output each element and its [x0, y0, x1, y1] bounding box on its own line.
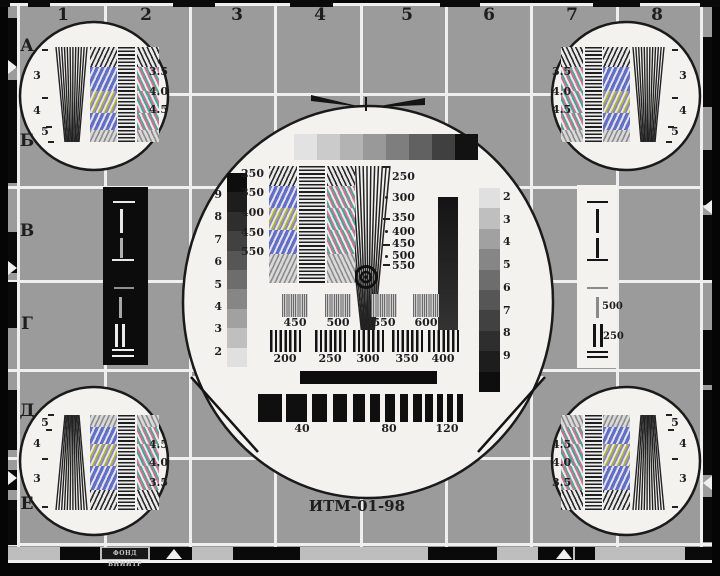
- column-number: 2: [136, 6, 156, 26]
- wedge-tick: [48, 141, 54, 143]
- corner-grating-label: 4.5: [146, 104, 168, 117]
- lf-burst-bar: [258, 394, 282, 422]
- grating-band: [603, 130, 630, 142]
- grating-band: [90, 130, 117, 142]
- lf-burst-bar: [333, 394, 347, 422]
- grayscale-right-label: 2: [503, 191, 521, 204]
- pulse-element: [596, 209, 599, 233]
- grating-band: [327, 186, 355, 208]
- grayscale-right-label: 8: [503, 327, 521, 340]
- column-number: 8: [647, 6, 667, 26]
- corner-grating-label: 3.5: [552, 66, 574, 79]
- center-wedge-label: 350: [392, 212, 422, 225]
- center-grating-label: 550: [234, 246, 264, 259]
- fine-burst-label: 450: [280, 317, 310, 330]
- issuer-mark-box: ФОНД ВНИИТР: [102, 548, 148, 559]
- wedge-tick: [672, 458, 678, 460]
- grating-band: [90, 490, 117, 510]
- fine-burst-block: [282, 294, 308, 317]
- corner-grating-column: [118, 47, 135, 142]
- lf-burst-label: 120: [432, 423, 462, 436]
- grayscale-left-label: 7: [204, 234, 222, 247]
- pulse-element: [119, 297, 122, 318]
- coarse-burst-block: [392, 330, 423, 352]
- left-border-notch: [8, 261, 17, 275]
- grating-band: [90, 91, 117, 113]
- grayscale-right-step: [479, 331, 500, 351]
- lf-burst-bar: [312, 394, 327, 422]
- right-border-notch: [703, 200, 712, 214]
- column-number: 4: [310, 6, 330, 26]
- gray-staircase-step: [363, 134, 386, 160]
- center-wedge-label: 300: [392, 192, 422, 205]
- pulse-element: [587, 201, 608, 203]
- corner-wedge-label: 3: [30, 473, 44, 486]
- grating-band: [269, 208, 297, 230]
- left-border-notch: [8, 60, 17, 74]
- grating-band: [603, 444, 630, 466]
- fine-burst-label: 500: [323, 317, 353, 330]
- coarse-burst-label: 200: [270, 353, 300, 366]
- corner-grating-label: 4.5: [552, 104, 574, 117]
- center-grating-column: [299, 166, 325, 283]
- grating-band: [561, 130, 583, 142]
- bottom-strip-mark: [233, 547, 300, 560]
- grayscale-left-step: [227, 270, 247, 289]
- grayscale-left-step: [227, 289, 247, 308]
- left-border-notch: [8, 471, 17, 485]
- grating-band: [603, 415, 630, 427]
- grating-band: [603, 67, 630, 91]
- top-border-mark: [700, 0, 720, 7]
- coarse-burst-block: [315, 330, 346, 352]
- pulse-element: [587, 356, 608, 358]
- grating-band: [327, 166, 355, 186]
- pulse-element: [120, 238, 123, 258]
- fine-burst-label: 600: [411, 317, 441, 330]
- grayscale-left-label: 6: [204, 256, 222, 269]
- corner-wedge-label: 3: [676, 70, 690, 83]
- wedge-tick: [42, 506, 48, 508]
- pulse-element: [112, 355, 134, 357]
- gray-staircase-step: [432, 134, 455, 160]
- column-number: 6: [479, 6, 499, 26]
- bottom-strip-notch: [556, 549, 572, 559]
- grating-band: [603, 113, 630, 130]
- coarse-burst-label: 350: [392, 353, 422, 366]
- grating-band: [137, 490, 159, 510]
- coarse-burst-label: 250: [315, 353, 345, 366]
- grayscale-right-step: [479, 351, 500, 371]
- right-border-mark: [703, 497, 712, 542]
- grayscale-right-label: 9: [503, 350, 521, 363]
- fine-burst-block: [371, 294, 397, 317]
- black-reference-bar: [438, 197, 458, 332]
- pulse-label: 250: [603, 331, 627, 343]
- grayscale-left-label: 2: [204, 346, 222, 359]
- lf-burst-bar: [286, 394, 307, 422]
- corner-grating-label: 4.0: [146, 457, 168, 470]
- pulse-element: [596, 297, 599, 318]
- pulse-element: [600, 324, 603, 347]
- lf-burst-label: 80: [374, 423, 404, 436]
- lf-burst-bar: [370, 394, 380, 422]
- grating-band: [603, 427, 630, 444]
- corner-wedge-label: 4: [676, 105, 690, 118]
- lf-burst-label: 40: [287, 423, 317, 436]
- column-number: 5: [397, 6, 417, 26]
- wedge-tick-dot: [385, 196, 388, 199]
- right-border-mark: [703, 330, 712, 385]
- grayscale-right-label: 7: [503, 305, 521, 318]
- right-border-mark: [703, 390, 712, 475]
- grayscale-left-step: [227, 348, 247, 367]
- center-grating-label: 350: [234, 187, 264, 200]
- grating-band: [90, 67, 117, 91]
- grating-band: [90, 444, 117, 466]
- corner-wedge-label: 4: [30, 438, 44, 451]
- bottom-strip-mark: [60, 547, 100, 560]
- wedge-tick: [383, 264, 390, 266]
- grating-band: [90, 466, 117, 490]
- left-border-mark: [8, 282, 17, 328]
- column-number: 3: [227, 6, 247, 26]
- left-border-mark: [8, 140, 17, 183]
- grayscale-left-label: 4: [204, 301, 222, 314]
- gray-staircase-step: [340, 134, 363, 160]
- wedge-tick: [383, 166, 390, 168]
- wedge-tick: [383, 218, 390, 220]
- corner-grating-column: [118, 415, 135, 510]
- corner-wedge-label: 3: [30, 70, 44, 83]
- corner-grating-column: [90, 415, 117, 510]
- wedge-tick: [48, 414, 54, 416]
- center-grating-label: 400: [234, 207, 264, 220]
- wedge-tick-dot: [385, 255, 388, 258]
- bottom-strip-mark: [685, 547, 712, 560]
- grating-band: [90, 427, 117, 444]
- gray-staircase-step: [294, 134, 317, 160]
- wedge-tick: [672, 506, 678, 508]
- pulse-element: [113, 201, 135, 203]
- grayscale-right-step: [479, 208, 500, 228]
- pulse-element: [120, 209, 123, 233]
- top-border-mark: [0, 0, 10, 7]
- grayscale-right-step: [479, 290, 500, 310]
- wedge-tick: [42, 458, 48, 460]
- grating-band: [90, 113, 117, 130]
- fine-burst-block: [325, 294, 351, 317]
- right-border-notch: [703, 476, 712, 490]
- grayscale-right-label: 5: [503, 259, 521, 272]
- grating-band: [269, 230, 297, 254]
- gray-staircase-step: [317, 134, 340, 160]
- center-grating-column: [327, 166, 355, 283]
- fine-burst-label: 550: [369, 317, 399, 330]
- grayscale-right-step: [479, 310, 500, 330]
- top-border-mark: [28, 0, 50, 7]
- grayscale-right-label: 3: [503, 214, 521, 227]
- grating-band: [137, 47, 159, 67]
- top-border-mark: [290, 0, 333, 7]
- corner-grating-label: 4.0: [552, 86, 574, 99]
- center-wedge-label: 250: [392, 171, 422, 184]
- lf-burst-bar: [425, 394, 433, 422]
- lf-burst-bar: [457, 394, 463, 422]
- pulse-element: [112, 349, 134, 351]
- grating-band: [327, 254, 355, 283]
- lf-burst-bar: [437, 394, 443, 422]
- pulse-element: [114, 287, 134, 289]
- grayscale-right-step: [479, 229, 500, 249]
- corner-grating-label: 4.0: [552, 457, 574, 470]
- grating-band: [269, 166, 297, 186]
- row-letter: Д: [15, 402, 39, 422]
- grating-band: [561, 415, 583, 427]
- grayscale-left-label: 3: [204, 323, 222, 336]
- lf-burst-bar: [413, 394, 422, 422]
- grayscale-left-step: [227, 309, 247, 328]
- corner-grating-label: 4.5: [552, 439, 574, 452]
- column-number: 1: [53, 6, 73, 26]
- wedge-tick: [666, 141, 672, 143]
- pulse-element: [122, 324, 125, 347]
- grating-band: [327, 208, 355, 230]
- grayscale-right-step: [479, 372, 500, 392]
- lf-burst-bar: [353, 394, 365, 422]
- coarse-burst-label: 300: [353, 353, 383, 366]
- pulse-element: [587, 351, 608, 353]
- grating-band: [90, 47, 117, 67]
- corner-grating-column: [603, 415, 630, 510]
- corner-grating-column: [585, 415, 602, 510]
- corner-grating-label: 3.5: [146, 66, 168, 79]
- corner-wedge-label: 5: [38, 126, 52, 139]
- corner-wedge-label: 5: [668, 417, 682, 430]
- corner-wedge-label: 4: [30, 105, 44, 118]
- grayscale-left-label: 9: [204, 189, 222, 202]
- row-letter: Е: [15, 495, 39, 515]
- wedge-tick: [672, 49, 678, 51]
- grayscale-right-step: [479, 188, 500, 208]
- grating-band: [327, 230, 355, 254]
- corner-wedge-label: 5: [668, 126, 682, 139]
- grating-band: [603, 490, 630, 510]
- grating-band: [561, 490, 583, 510]
- grating-band: [561, 47, 583, 67]
- row-letter: В: [15, 222, 39, 242]
- top-border-mark: [173, 0, 215, 7]
- corner-grating-column: [585, 47, 602, 142]
- row-letter: Б: [15, 132, 39, 152]
- wedge-tick: [42, 97, 48, 99]
- coarse-burst-block: [353, 330, 384, 352]
- lf-burst-bar: [400, 394, 408, 422]
- card-title: ИТМ-01-98: [287, 498, 427, 515]
- gray-staircase-step: [386, 134, 409, 160]
- top-border-mark: [440, 0, 480, 7]
- right-border-mark: [703, 150, 712, 205]
- grayscale-right-step: [479, 270, 500, 290]
- fine-burst-block: [413, 294, 439, 317]
- pulse-element: [115, 324, 118, 347]
- row-letter: Г: [15, 315, 39, 335]
- corner-grating-column: [90, 47, 117, 142]
- bottom-strip-notch: [166, 549, 182, 559]
- lf-burst-bar: [385, 394, 395, 422]
- corner-grating-column: [603, 47, 630, 142]
- gray-staircase-step: [409, 134, 432, 160]
- center-grating-label: 250: [234, 168, 264, 181]
- pulse-label: 500: [602, 301, 626, 313]
- coarse-burst-block: [428, 330, 459, 352]
- test-card-itm-01-98: 12345678АБВГДЕ3453.54.04.53453.54.04.534…: [0, 0, 720, 576]
- grayscale-left-step: [227, 328, 247, 347]
- left-border-mark: [8, 390, 17, 450]
- center-grating-label: 450: [234, 227, 264, 240]
- grayscale-right-label: 6: [503, 282, 521, 295]
- grating-band: [137, 415, 159, 427]
- grating-band: [90, 415, 117, 427]
- grating-band: [603, 47, 630, 67]
- gray-staircase-step: [455, 134, 478, 160]
- corner-wedge-label: 4: [676, 438, 690, 451]
- left-border-mark: [8, 500, 17, 545]
- coarse-burst-label: 400: [428, 353, 458, 366]
- pulse-element: [587, 259, 608, 261]
- top-border-mark: [593, 0, 640, 7]
- left-border-mark: [8, 80, 17, 146]
- right-border-mark: [703, 37, 712, 107]
- wedge-tick: [42, 49, 48, 51]
- corner-grating-label: 3.5: [146, 477, 168, 490]
- corner-wedge-label: 3: [676, 473, 690, 486]
- pulse-element: [593, 324, 596, 347]
- wedge-tick: [672, 97, 678, 99]
- grayscale-left-label: 5: [204, 279, 222, 292]
- grayscale-right-step: [479, 249, 500, 269]
- corner-grating-label: 4.5: [146, 439, 168, 452]
- grating-band: [137, 130, 159, 142]
- lf-burst-bar: [447, 394, 453, 422]
- coarse-burst-block: [270, 330, 301, 352]
- long-black-bar: [300, 371, 437, 384]
- pulse-box-black: [103, 187, 148, 365]
- column-number: 7: [562, 6, 582, 26]
- grayscale-left-label: 8: [204, 211, 222, 224]
- bottom-strip-mark: [428, 547, 497, 560]
- corner-grating-label: 4.0: [146, 86, 168, 99]
- pulse-element: [587, 287, 608, 289]
- pulse-element: [112, 259, 134, 261]
- grating-band: [603, 91, 630, 113]
- right-border-mark: [703, 215, 712, 280]
- row-letter: А: [15, 37, 39, 57]
- grating-band: [269, 186, 297, 208]
- grayscale-right-label: 4: [503, 236, 521, 249]
- wedge-tick: [383, 244, 390, 246]
- corner-wedge-label: 5: [38, 417, 52, 430]
- grating-band: [269, 254, 297, 283]
- center-grating-column: [269, 166, 297, 283]
- wedge-tick-dot: [385, 230, 388, 233]
- center-wedge-label: 550: [392, 260, 422, 273]
- bottom-strip-mark: [575, 547, 595, 560]
- corner-grating-label: 3.5: [552, 477, 574, 490]
- grating-band: [603, 466, 630, 490]
- pulse-element: [596, 238, 599, 258]
